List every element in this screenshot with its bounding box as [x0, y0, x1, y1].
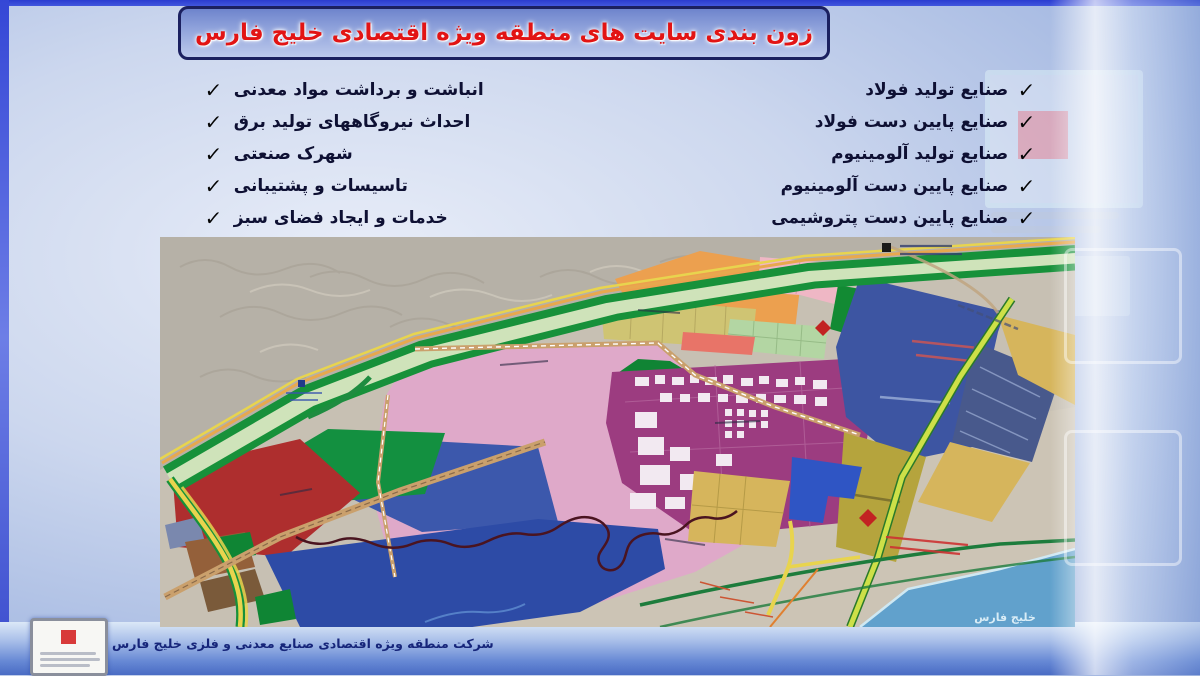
list-item-label: صنایع پایین دست فولاد — [815, 112, 1009, 132]
list-item: ✓ خدمات و ایجاد فضای سبز — [205, 202, 605, 234]
reservoir-marker — [298, 380, 305, 387]
logo-wave-line — [40, 652, 96, 655]
check-icon: ✓ — [1017, 80, 1036, 100]
background-frame-motif — [1064, 430, 1182, 566]
list-item: صنایع تولید فولاد ✓ — [735, 74, 1035, 106]
check-icon: ✓ — [1017, 176, 1036, 196]
company-name: شرکت منطقه ویژه اقتصادی صنایع معدنی و فل… — [112, 636, 494, 651]
logo-red-square — [61, 630, 76, 644]
slide-title-box: زون بندی سایت های منطقه ویژه اقتصادی خلی… — [178, 6, 830, 60]
check-icon: ✓ — [204, 144, 223, 164]
list-item-label: احداث نیروگاههای تولید برق — [234, 112, 471, 132]
list-item: ✓ شهرک صنعتی — [205, 138, 605, 170]
check-icon: ✓ — [204, 112, 223, 132]
check-icon: ✓ — [1017, 208, 1036, 228]
list-item: ✓ تاسیسات و پشتیبانی — [205, 170, 605, 202]
list-item-label: صنایع پایین دست پتروشیمی — [771, 208, 1008, 228]
check-icon: ✓ — [1017, 112, 1036, 132]
check-icon: ✓ — [204, 176, 223, 196]
check-icon: ✓ — [204, 80, 223, 100]
footer-bar: شرکت منطقه ویژه اقتصادی صنایع معدنی و فل… — [0, 622, 1200, 675]
background-frame-motif — [1064, 248, 1182, 364]
sea-label: خلیج فارس — [974, 611, 1036, 624]
logo-wave-line — [40, 658, 100, 661]
list-item: صنایع پایین دست پتروشیمی ✓ — [735, 202, 1035, 234]
list-item: صنایع تولید آلومینیوم ✓ — [735, 138, 1035, 170]
list-item-label: صنایع تولید آلومینیوم — [831, 144, 1008, 164]
list-item: صنایع پایین دست فولاد ✓ — [735, 106, 1035, 138]
slide: { "title": "زون بندی سایت های منطقه ویژه… — [0, 0, 1200, 675]
slide-border-left — [0, 0, 9, 675]
list-item-label: انباشت و برداشت مواد معدنی — [234, 80, 484, 100]
checklist-left: ✓ انباشت و برداشت مواد معدنی ✓ احداث نیر… — [205, 74, 605, 234]
checklist-right: صنایع تولید فولاد ✓ صنایع پایین دست فولا… — [735, 74, 1035, 234]
list-item: ✓ احداث نیروگاههای تولید برق — [205, 106, 605, 138]
list-item-label: تاسیسات و پشتیبانی — [234, 176, 408, 196]
zoning-map: خلیج فارس — [160, 237, 1075, 627]
list-item-label: شهرک صنعتی — [234, 144, 353, 164]
slide-title: زون بندی سایت های منطقه ویژه اقتصادی خلی… — [195, 20, 813, 46]
list-item: صنایع پایین دست آلومینیوم ✓ — [735, 170, 1035, 202]
logo-wave-line — [40, 664, 90, 667]
list-item: ✓ انباشت و برداشت مواد معدنی — [205, 74, 605, 106]
list-item-label: خدمات و ایجاد فضای سبز — [234, 208, 448, 228]
list-item-label: صنایع تولید فولاد — [865, 80, 1008, 100]
list-item-label: صنایع پایین دست آلومینیوم — [781, 176, 1009, 196]
check-icon: ✓ — [1017, 144, 1036, 164]
company-logo — [30, 618, 108, 676]
port-marker — [882, 243, 891, 252]
check-icon: ✓ — [204, 208, 223, 228]
